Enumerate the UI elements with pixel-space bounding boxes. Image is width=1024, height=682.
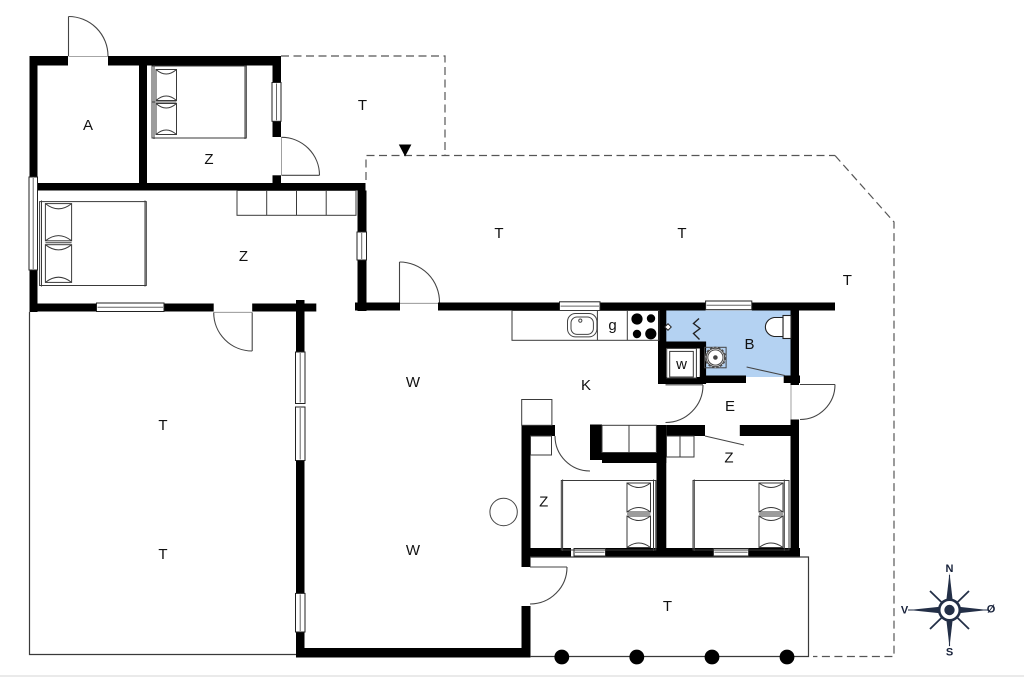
svg-text:Ø: Ø — [987, 604, 996, 616]
svg-text:B: B — [744, 336, 754, 353]
svg-text:N: N — [946, 563, 954, 575]
svg-text:K: K — [581, 377, 591, 394]
svg-text:A: A — [83, 117, 93, 134]
svg-text:Z: Z — [724, 450, 733, 467]
svg-text:T: T — [843, 272, 852, 289]
svg-text:T: T — [494, 225, 503, 242]
svg-text:T: T — [677, 225, 686, 242]
svg-text:g: g — [608, 317, 616, 334]
svg-text:Z: Z — [539, 494, 548, 511]
svg-text:Z: Z — [239, 248, 248, 265]
svg-text:w: w — [675, 356, 687, 373]
svg-text:W: W — [406, 542, 421, 559]
svg-text:T: T — [663, 598, 672, 615]
svg-text:E: E — [725, 398, 735, 415]
svg-text:S: S — [946, 647, 953, 659]
svg-text:V: V — [901, 605, 909, 617]
svg-text:W: W — [406, 374, 421, 391]
svg-text:T: T — [158, 417, 167, 434]
svg-text:T: T — [158, 546, 167, 563]
svg-text:T: T — [358, 97, 367, 114]
svg-text:Z: Z — [204, 151, 213, 168]
